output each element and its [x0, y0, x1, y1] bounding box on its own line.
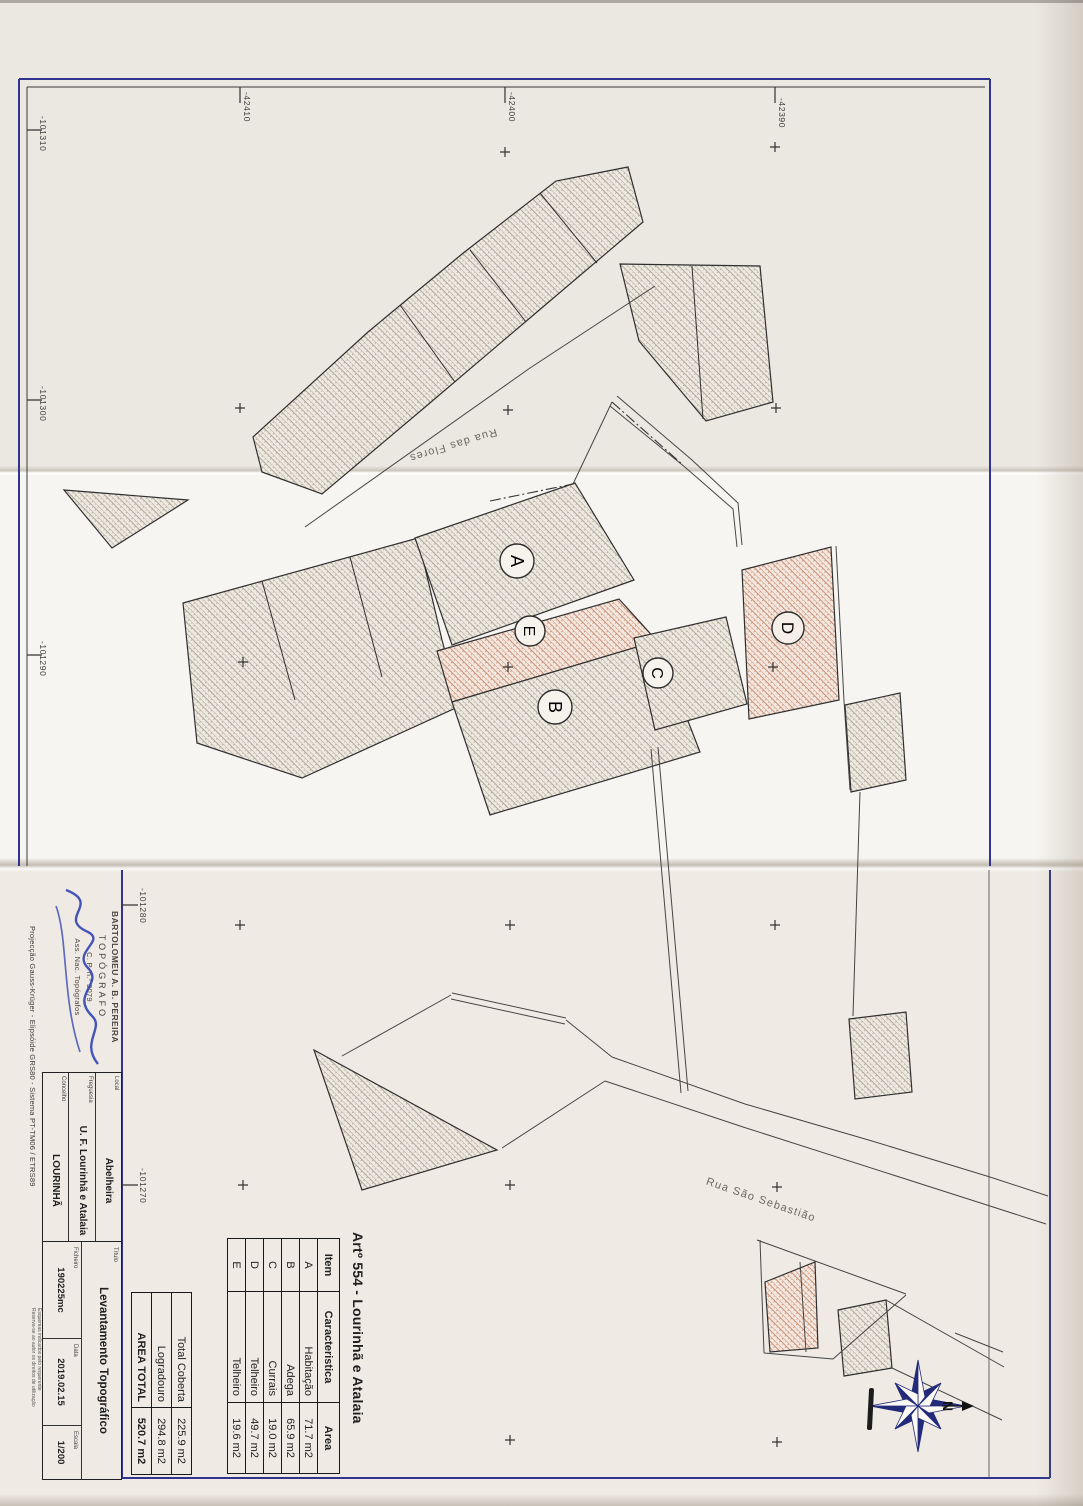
cell-area: 49.7 m2	[246, 1403, 264, 1474]
field-value: 190225mc	[56, 1242, 67, 1338]
title-block-box: Local Abelheira Freguesia U. F. Lourinhã…	[42, 1072, 122, 1480]
parcel-east-upper	[620, 264, 773, 421]
field-ficheiro: Ficheiro 190225mc	[43, 1242, 82, 1339]
street-rua-sao-sebastiao: Rua São Sebastião	[705, 1176, 818, 1225]
drawing-info: Título Levantamento Topográfico Ficheiro…	[43, 1242, 121, 1479]
cell-name: Currais	[264, 1292, 282, 1403]
drawing-title: Levantamento Topográfico	[97, 1242, 109, 1479]
signature	[38, 876, 118, 1081]
field-value: 2019.02.15	[56, 1339, 67, 1425]
field-escala: Escala 1/200	[43, 1426, 82, 1479]
annex-east	[845, 693, 906, 792]
scanned-survey-sheet: A E B C D Rua das Flores Rua São Sebasti…	[0, 0, 1083, 1506]
field-value: LOURINHÃ	[50, 1120, 61, 1241]
grid-label-left-1: -101310	[38, 116, 48, 151]
table-row: D Telheiro 49.7 m2	[246, 1239, 264, 1474]
field-value: Abelheira	[103, 1120, 114, 1241]
grid-label-top-3: -42390	[777, 98, 787, 128]
cell-name: Adega	[282, 1292, 300, 1403]
grand-total-value: 520.7 m2	[132, 1408, 152, 1475]
field-label: Data	[73, 1341, 81, 1357]
area-table: Item Caracteristica Area A Habitação 71.…	[227, 1238, 340, 1474]
north-arrowhead	[962, 1401, 974, 1411]
field-label: Título	[112, 1244, 120, 1291]
table-row: C Currais 19.0 m2	[264, 1239, 282, 1474]
scan-edge-bottom	[0, 1494, 1083, 1506]
cell-item: D	[246, 1239, 264, 1292]
cell-item: B	[282, 1239, 300, 1292]
grid-label-lower-2: -101270	[138, 1168, 148, 1203]
title-block: BARTOLOMEU A. B. PEREIRA TOPÓGRAFO C. P.…	[24, 876, 130, 1496]
header-caracteristica: Caracteristica	[318, 1292, 340, 1403]
note-line: Reserva-se ao autor os direitos de utili…	[30, 1308, 36, 1428]
cell-item: C	[264, 1239, 282, 1292]
table-row: B Adega 65.9 m2	[282, 1239, 300, 1474]
cell-name: Habitação	[300, 1292, 318, 1403]
note-line: Esquemas indicados pelo requerente	[36, 1308, 42, 1428]
parcel-gray-south	[838, 1300, 892, 1376]
field-label: Freguesia	[87, 1073, 95, 1120]
area-table-block: Artº 554 - Lourinhã e Atalaia Item Carac…	[118, 1230, 368, 1500]
cell-area: 19.6 m2	[228, 1403, 246, 1474]
header-area: Area	[318, 1403, 340, 1474]
field-freguesia: Freguesia U. F. Lourinhã e Atalaia	[68, 1073, 94, 1241]
field-value: 1/200	[56, 1426, 67, 1479]
north-letter: N	[940, 1401, 956, 1411]
table-header-row: Item Caracteristica Area	[318, 1239, 340, 1474]
table-row: E Telheiro 19.6 m2	[228, 1239, 246, 1474]
table-row: Logradouro 294.8 m2	[152, 1293, 172, 1475]
parcel-red-south	[765, 1262, 818, 1352]
grid-label-top-1: -42410	[242, 92, 252, 122]
parcel-triangle-south	[314, 1050, 497, 1190]
scan-edge-top	[0, 0, 1083, 3]
grid-label-left-3: -101290	[38, 641, 48, 676]
file-row: Ficheiro 190225mc Data 2019.02.15 Escala…	[43, 1242, 82, 1479]
compass-rose: N	[867, 1360, 974, 1452]
label-building-b: B	[545, 701, 565, 713]
field-value: U. F. Lourinhã e Atalaia	[77, 1120, 88, 1241]
grid-label-lower-1: -101280	[138, 888, 148, 923]
urban-block-west	[183, 538, 460, 778]
annex-southeast	[849, 1012, 912, 1099]
header-item: Item	[318, 1239, 340, 1292]
location-fields: Local Abelheira Freguesia U. F. Lourinhã…	[43, 1073, 121, 1242]
cell-item: A	[300, 1239, 318, 1292]
cell-area: 19.0 m2	[264, 1403, 282, 1474]
label-building-c: C	[648, 667, 665, 679]
table-row: A Habitação 71.7 m2	[300, 1239, 318, 1474]
label-building-d: D	[778, 622, 797, 634]
surveyor-stamp: BARTOLOMEU A. B. PEREIRA TOPÓGRAFO C. P.…	[73, 882, 120, 1072]
parcel-triangle-west	[64, 490, 188, 548]
hatched-parcels	[64, 167, 912, 1376]
grid-label-top-2: -42400	[507, 92, 517, 122]
total-label: Total Coberta	[172, 1293, 192, 1408]
compass-bar	[867, 1388, 874, 1430]
table-row: Total Coberta 225.9 m2	[172, 1293, 192, 1475]
grand-total-label: AREA TOTAL	[132, 1293, 152, 1408]
grid-label-left-2: -101300	[38, 386, 48, 421]
projection-note: Projecção Gauss-Krüger - Elipsóide GRS80…	[28, 926, 37, 1187]
scan-edge-right	[1037, 0, 1083, 1506]
field-label: Local	[113, 1073, 121, 1120]
fineprint-notes: Esquemas indicados pelo requerente Reser…	[30, 1308, 42, 1428]
label-building-a: A	[507, 555, 527, 567]
table-row: AREA TOTAL 520.7 m2	[132, 1293, 152, 1475]
totals-table: Total Coberta 225.9 m2 Logradouro 294.8 …	[131, 1292, 192, 1475]
axis-dashdot-lines	[490, 402, 683, 501]
cell-name: Telheiro	[228, 1292, 246, 1403]
cell-area: 71.7 m2	[300, 1403, 318, 1474]
total-label: Logradouro	[152, 1293, 172, 1408]
field-data: Data 2019.02.15	[43, 1339, 82, 1426]
field-titulo: Título Levantamento Topográfico	[82, 1242, 122, 1479]
article-title: Artº 554 - Lourinhã e Atalaia	[350, 1232, 366, 1500]
cell-item: E	[228, 1239, 246, 1292]
field-label: Ficheiro	[73, 1244, 81, 1268]
cell-area: 65.9 m2	[282, 1403, 300, 1474]
field-concelho: Concelho LOURINHÃ	[43, 1073, 68, 1241]
field-label: Concelho	[60, 1073, 68, 1120]
total-value: 294.8 m2	[152, 1408, 172, 1475]
label-building-e: E	[520, 626, 537, 637]
cell-name: Telheiro	[246, 1292, 264, 1403]
field-label: Escala	[73, 1428, 81, 1449]
total-value: 225.9 m2	[172, 1408, 192, 1475]
field-local: Local Abelheira	[95, 1073, 121, 1241]
